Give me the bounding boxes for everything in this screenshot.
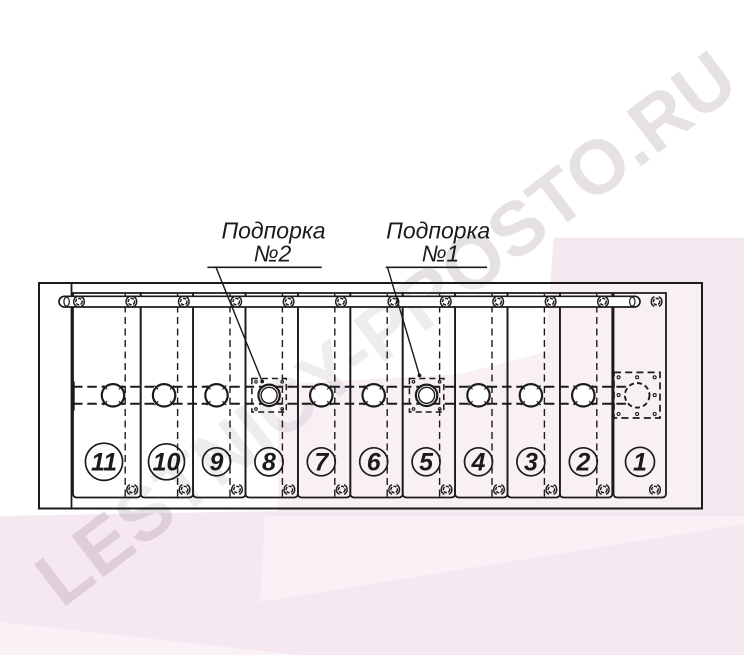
svg-text:№2: №2 [254,241,292,267]
svg-text:5: 5 [419,448,434,476]
svg-text:10: 10 [153,448,181,476]
svg-text:9: 9 [210,448,224,476]
svg-text:7: 7 [314,448,329,476]
svg-text:1: 1 [633,448,647,476]
svg-text:8: 8 [262,448,276,476]
svg-text:4: 4 [471,448,486,476]
svg-text:11: 11 [91,448,117,476]
svg-text:№1: №1 [422,241,460,267]
svg-text:3: 3 [524,448,538,476]
svg-text:2: 2 [575,448,590,476]
svg-text:6: 6 [367,448,382,476]
